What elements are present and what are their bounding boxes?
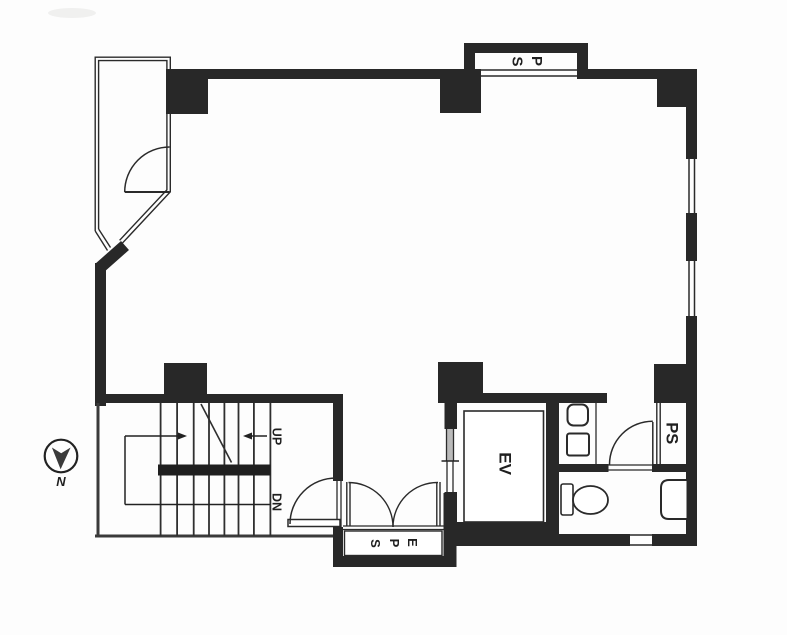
svg-text:S: S (509, 56, 526, 66)
svg-text:EV: EV (495, 452, 514, 475)
svg-text:P: P (387, 539, 402, 548)
svg-text:UP: UP (270, 428, 284, 445)
svg-text:PS: PS (662, 422, 680, 444)
svg-text:DN: DN (270, 493, 284, 511)
svg-text:P: P (528, 56, 545, 66)
svg-text:S: S (368, 539, 383, 548)
svg-text:N: N (56, 474, 66, 489)
svg-text:E: E (405, 538, 420, 547)
